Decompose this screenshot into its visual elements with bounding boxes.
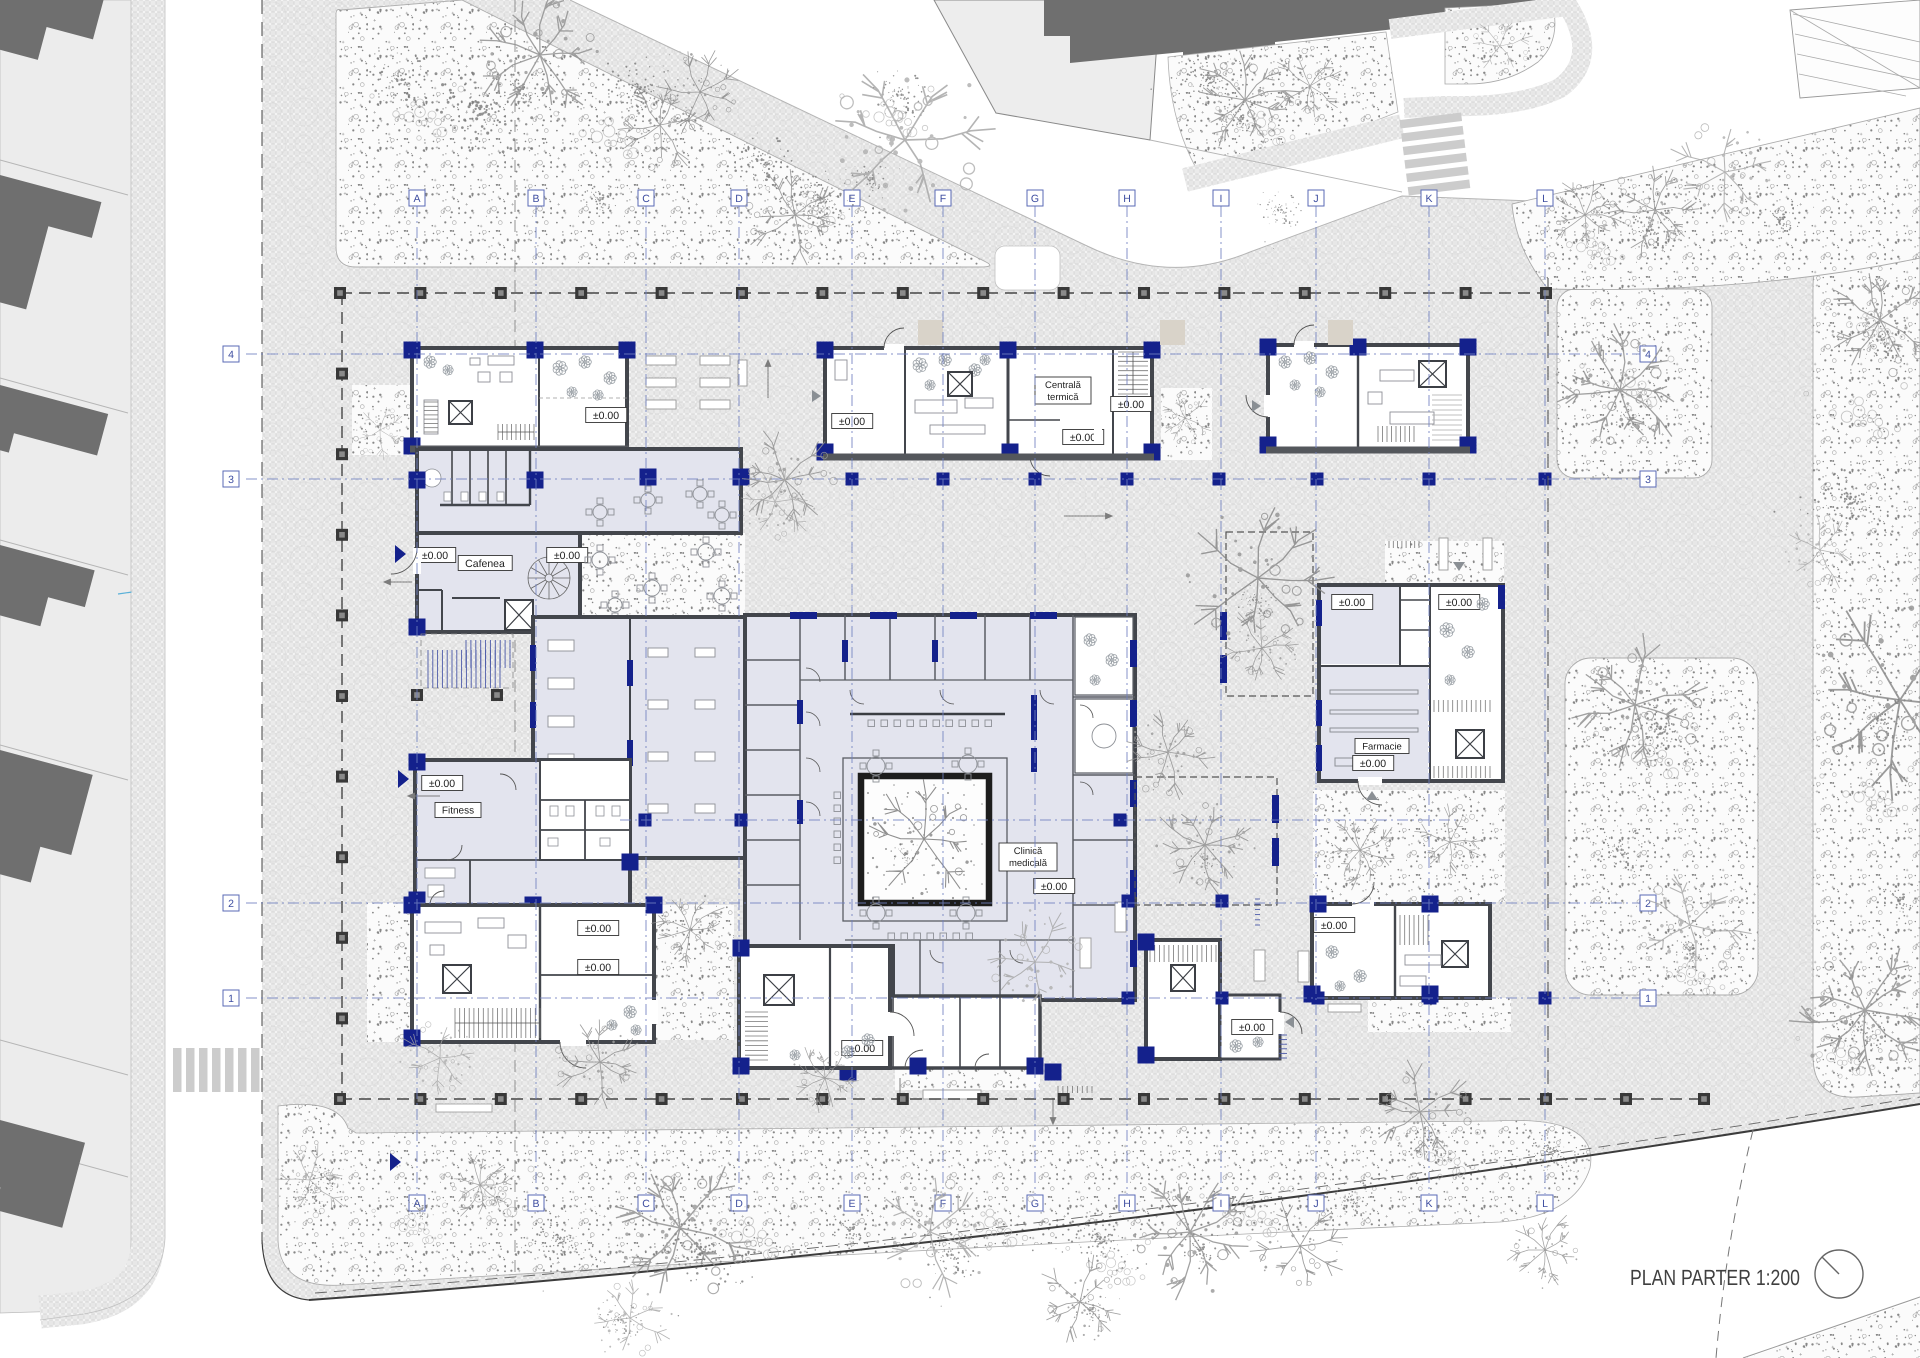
svg-text:Centrală: Centrală <box>1045 380 1082 391</box>
svg-text:E: E <box>848 1198 855 1210</box>
svg-text:H: H <box>1123 1198 1131 1210</box>
svg-text:L: L <box>1542 1198 1548 1210</box>
svg-text:±0.00: ±0.00 <box>593 410 619 422</box>
svg-text:±0.00: ±0.00 <box>554 550 580 562</box>
svg-text:G: G <box>1031 1198 1039 1210</box>
svg-text:±0.00: ±0.00 <box>1446 597 1472 609</box>
svg-text:K: K <box>1425 193 1432 205</box>
svg-text:±0.00: ±0.00 <box>1321 920 1347 932</box>
svg-text:±0.00: ±0.00 <box>1239 1022 1265 1034</box>
svg-text:±0.00: ±0.00 <box>1070 432 1096 444</box>
svg-text:L: L <box>1542 193 1548 205</box>
svg-text:H: H <box>1123 193 1131 205</box>
svg-text:termică: termică <box>1047 392 1079 403</box>
svg-text:E: E <box>848 193 855 205</box>
svg-text:±0.00: ±0.00 <box>1118 399 1144 411</box>
svg-text:2: 2 <box>228 898 234 910</box>
svg-text:J: J <box>1313 193 1318 205</box>
svg-text:Clinică: Clinică <box>1014 846 1043 857</box>
svg-text:3: 3 <box>228 474 234 486</box>
svg-text:J: J <box>1313 1198 1318 1210</box>
svg-text:±0.00: ±0.00 <box>585 923 611 935</box>
svg-text:medicală: medicală <box>1009 858 1048 869</box>
svg-text:4: 4 <box>228 349 234 361</box>
svg-text:±0.00: ±0.00 <box>585 962 611 974</box>
svg-text:±0.00: ±0.00 <box>1339 597 1365 609</box>
svg-text:D: D <box>735 193 743 205</box>
svg-text:3: 3 <box>1645 474 1651 486</box>
svg-text:1: 1 <box>1645 993 1651 1005</box>
svg-text:I: I <box>1220 1198 1223 1210</box>
svg-text:B: B <box>532 1198 539 1210</box>
svg-text:K: K <box>1425 1198 1432 1210</box>
svg-text:G: G <box>1031 193 1039 205</box>
svg-text:PLAN PARTER 1:200: PLAN PARTER 1:200 <box>1630 1265 1800 1290</box>
svg-text:F: F <box>940 193 946 205</box>
svg-text:±0.00: ±0.00 <box>429 778 455 790</box>
svg-text:±0.00: ±0.00 <box>1360 758 1386 770</box>
svg-text:B: B <box>532 193 539 205</box>
svg-text:1: 1 <box>228 993 234 1005</box>
svg-text:D: D <box>735 1198 743 1210</box>
svg-text:I: I <box>1220 193 1223 205</box>
svg-text:Cafenea: Cafenea <box>465 558 505 570</box>
svg-text:Fitness: Fitness <box>442 806 474 817</box>
svg-text:A: A <box>413 193 420 205</box>
svg-text:C: C <box>642 1198 650 1210</box>
svg-text:4: 4 <box>1645 349 1651 361</box>
svg-text:±0.00: ±0.00 <box>422 550 448 562</box>
svg-text:Farmacie: Farmacie <box>1362 741 1402 752</box>
svg-text:C: C <box>642 193 650 205</box>
svg-text:±0.00: ±0.00 <box>1041 881 1067 893</box>
